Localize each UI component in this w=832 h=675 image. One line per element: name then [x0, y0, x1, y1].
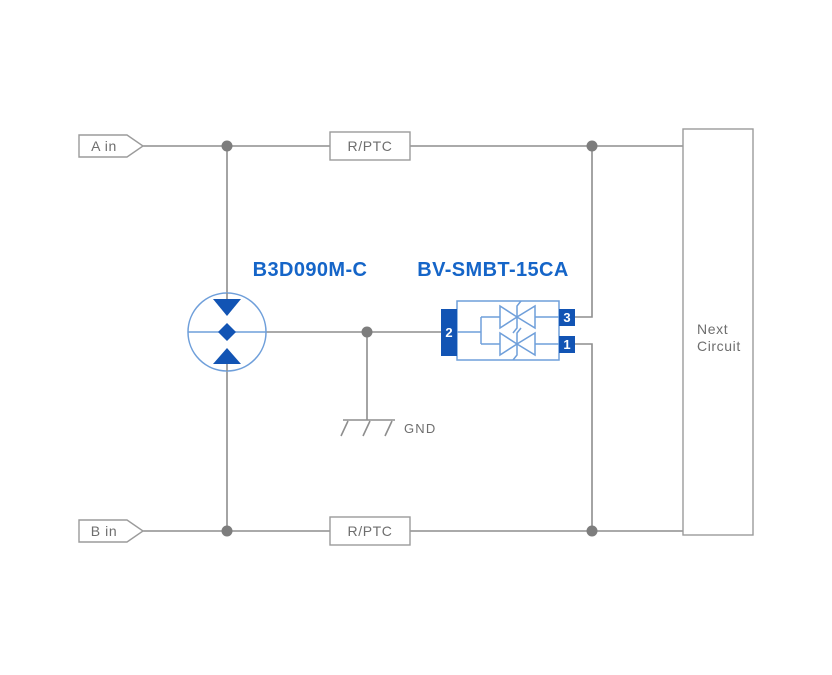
ground-symbol: GND	[341, 420, 437, 436]
next-circuit-label-line1: Next	[697, 321, 728, 337]
rptc-top: R/PTC	[330, 132, 410, 160]
next-circuit-label-line2: Circuit	[697, 338, 741, 354]
ground-label: GND	[404, 421, 437, 436]
circuit-diagram: GND A in B in R/PTC R/PTC Next Circuit	[0, 0, 832, 675]
rptc-bottom-label: R/PTC	[348, 523, 393, 539]
wire-pin3-to-top	[575, 146, 592, 317]
junction-middle	[362, 327, 373, 338]
tvs-symbol: 2 3 1 BV-SMBT-15CA	[417, 259, 575, 360]
tvs-pin3-label: 3	[563, 310, 570, 325]
wire-pin1-to-bottom	[575, 344, 592, 531]
next-circuit: Next Circuit	[683, 129, 753, 535]
tvs-pin1-label: 1	[563, 337, 570, 352]
junction-bottom-left	[222, 526, 233, 537]
tvs-pin2-label: 2	[445, 325, 452, 340]
input-flag-a: A in	[79, 135, 143, 157]
input-flag-b-label: B in	[91, 523, 118, 539]
input-flag-a-label: A in	[91, 138, 117, 154]
gdt-symbol: B3D090M-C	[188, 259, 367, 371]
tvs-body	[457, 301, 559, 360]
rptc-bottom: R/PTC	[330, 517, 410, 545]
rptc-top-label: R/PTC	[348, 138, 393, 154]
gdt-part-number: B3D090M-C	[253, 259, 368, 281]
ground-hatch-2	[363, 421, 370, 436]
ground-hatch-3	[385, 421, 392, 436]
ground-hatch-1	[341, 421, 348, 436]
input-flag-b: B in	[79, 520, 143, 542]
tvs-pin-2: 2	[441, 309, 457, 356]
junction-top-right	[587, 141, 598, 152]
tvs-part-number: BV-SMBT-15CA	[417, 259, 569, 281]
schematic-svg: GND A in B in R/PTC R/PTC Next Circuit	[0, 0, 832, 675]
junction-bottom-right	[587, 526, 598, 537]
tvs-pin-3: 3	[559, 309, 575, 326]
tvs-pin-1: 1	[559, 336, 575, 353]
junction-top-left	[222, 141, 233, 152]
